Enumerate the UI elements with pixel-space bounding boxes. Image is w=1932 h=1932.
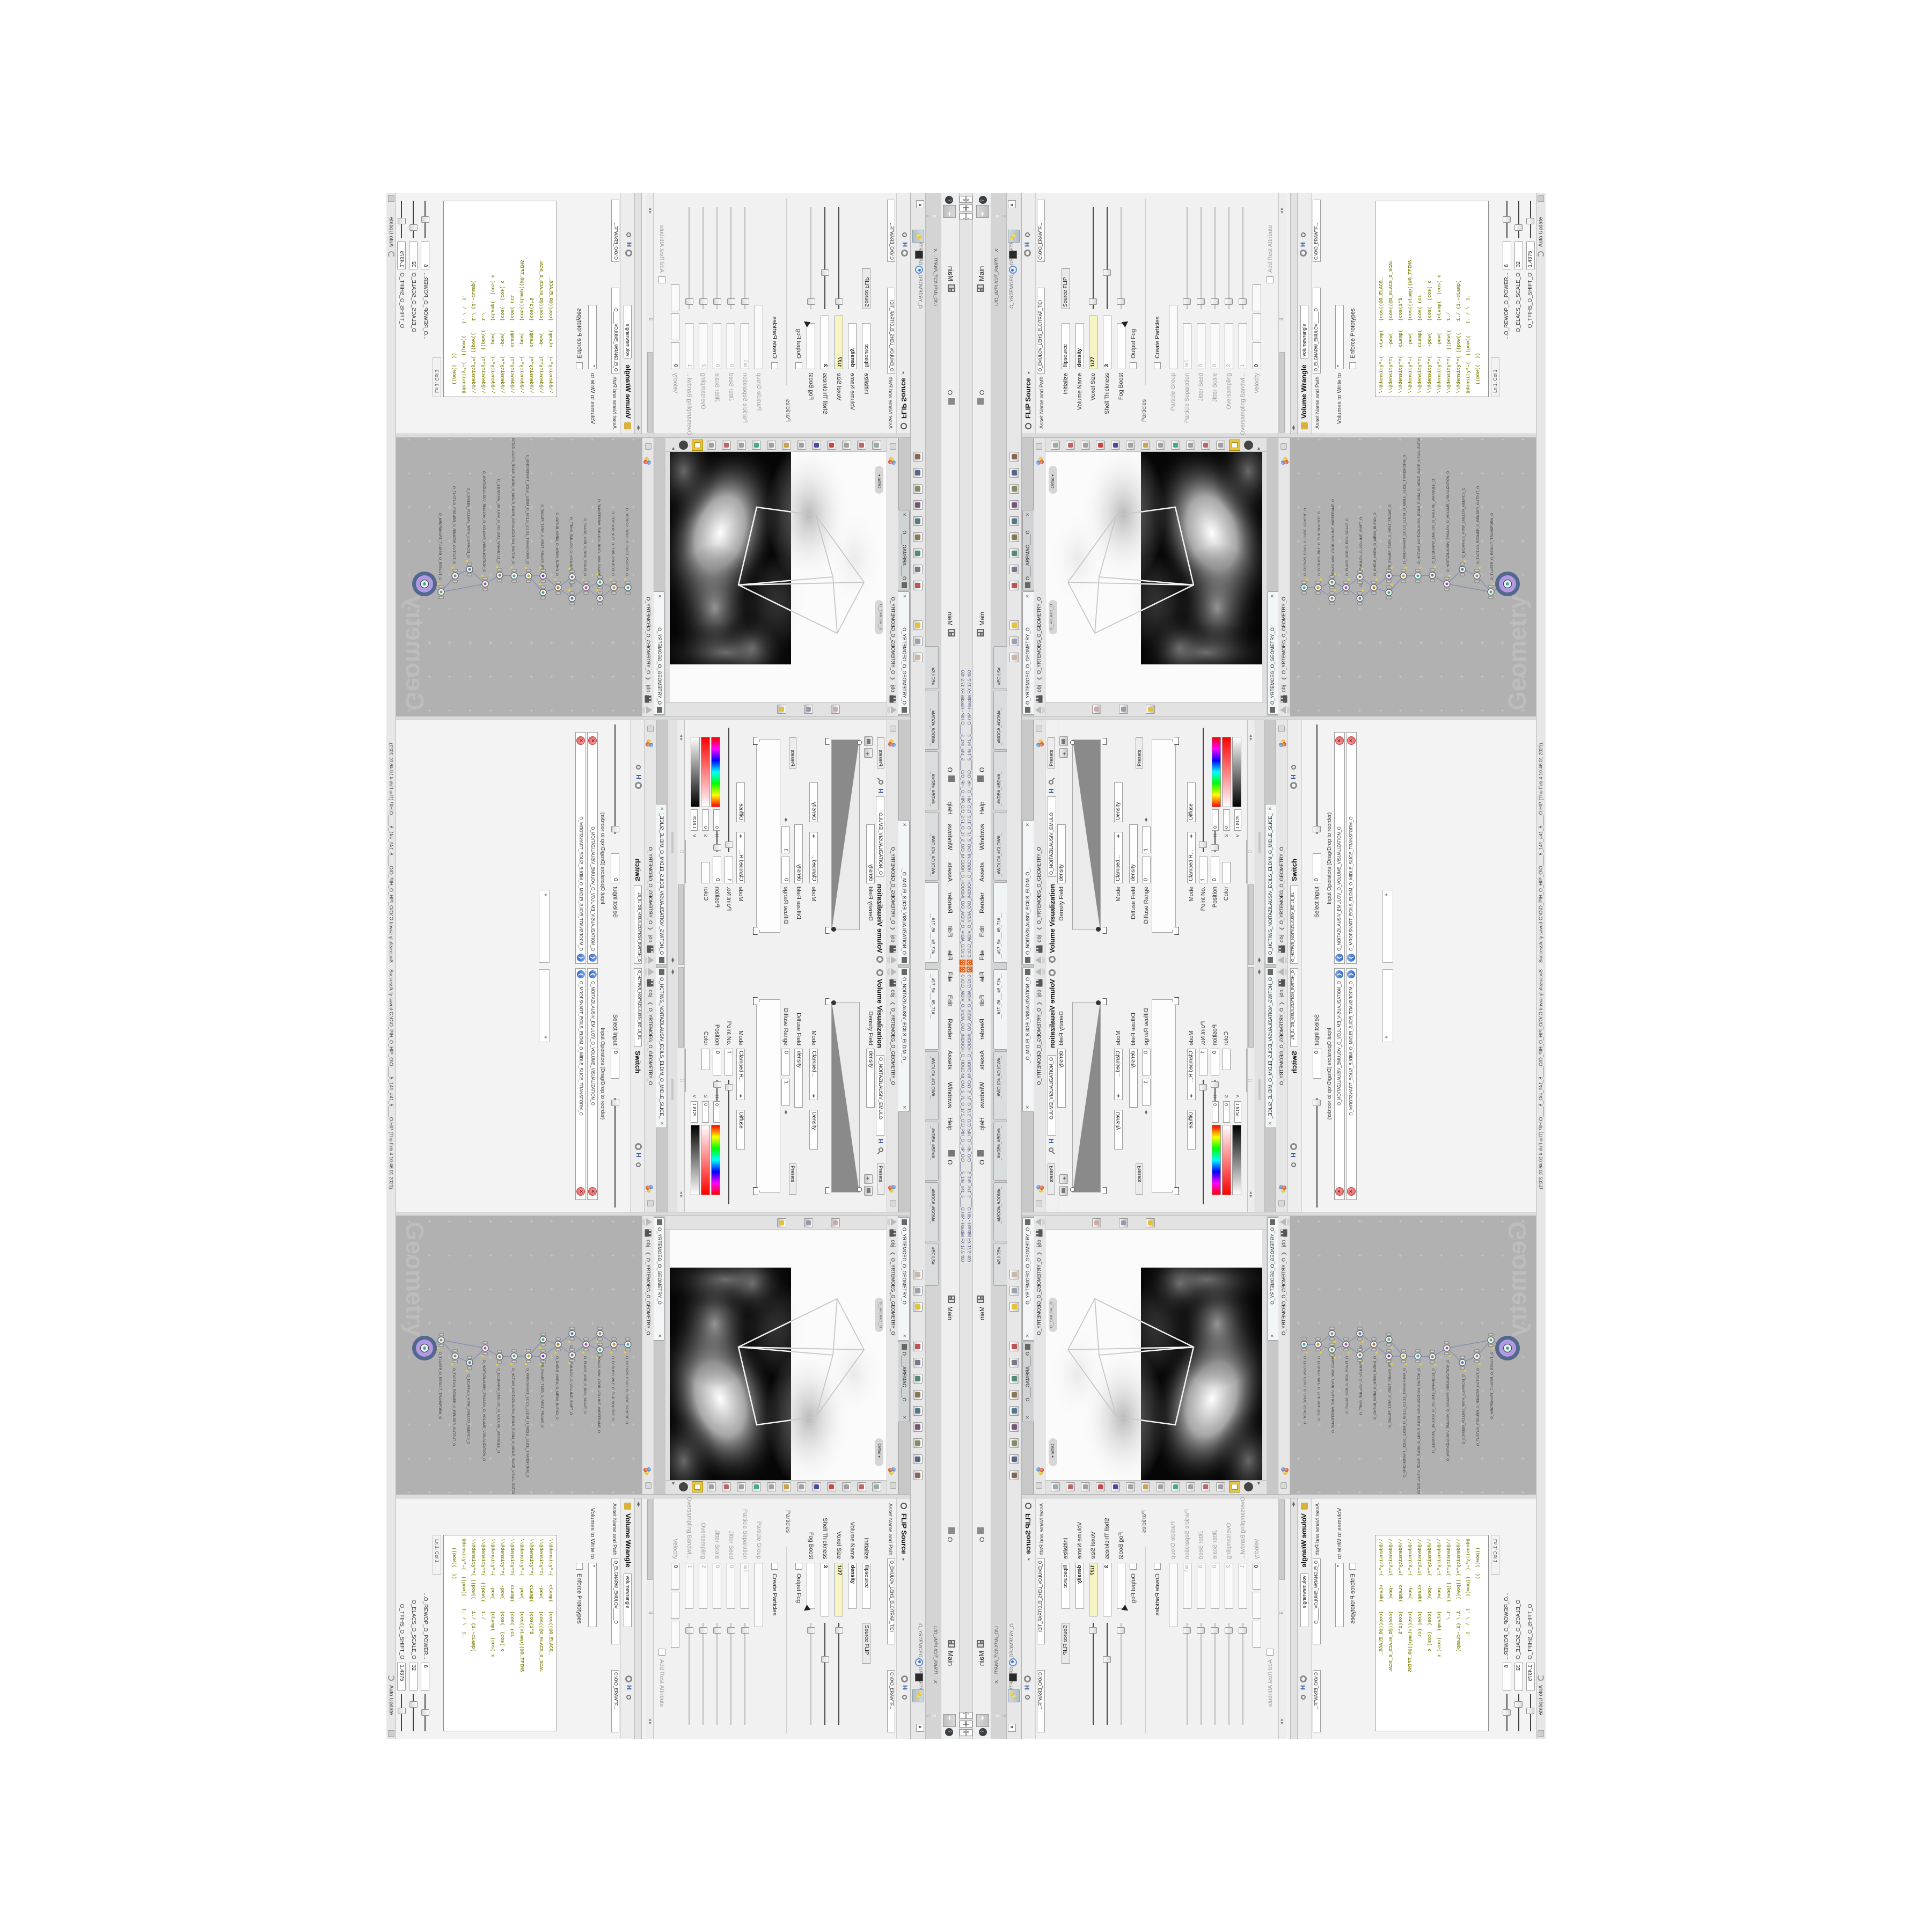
- svg-text:O_TLUSER_O_RESULT_TRANSFORM_O: O_TLUSER_O_RESULT_TRANSFORM_O: [438, 1352, 442, 1419]
- svg-text:O_TLUSER_O_RESULT_TRANSFORM_O: O_TLUSER_O_RESULT_TRANSFORM_O: [438, 513, 442, 580]
- svg-text:O_EREHPS_EBUC_O_CUBE_SPHERE_O: O_EREHPS_EBUC_O_CUBE_SPHERE_O: [625, 508, 628, 576]
- svg-text:O_ECAFRUS_HTIW_EMULOV_NEERCS_O: O_ECAFRUS_HTIW_EMULOV_NEERCS_O: [1462, 1374, 1466, 1444]
- svg-text:O_TUPTUO_REDNER_O_RENDER_OUTPU: O_TUPTUO_REDNER_O_RENDER_OUTPUT_O: [452, 1368, 456, 1446]
- svg-text:O_ELACS_XOB_O_BOX_SCALE_O: O_ELACS_XOB_O_BOX_SCALE_O: [583, 518, 587, 576]
- svg-text:O_ECRUOS_PILF_O_FLIP_SOURCE_O: O_ECRUOS_PILF_O_FLIP_SOURCE_O: [611, 511, 614, 576]
- svg-text:O_EREHPS_EBUC_O_CUBE_SPHERE_O: O_EREHPS_EBUC_O_CUBE_SPHERE_O: [625, 1356, 628, 1424]
- svg-text:O_HCTIWS_NOITAZILAUSIV_ECILS_E: O_HCTIWS_NOITAZILAUSIV_ECILS_ELDIM_O_MID…: [1417, 1368, 1421, 1494]
- svg-text:O_NOITAZILAUSIV_EMULOV_O_VOLUM: O_NOITAZILAUSIV_EMULOV_O_VOLUME_VISUALIZ…: [482, 1360, 486, 1461]
- svg-text:O_ELGNARW_EMULOV_O_VOLUME_WRAN: O_ELGNARW_EMULOV_O_VOLUME_WRANGLE_O: [1432, 479, 1436, 563]
- svg-text:O_ECRUOS_PILF_O_FLIP_SOURCE_O: O_ECRUOS_PILF_O_FLIP_SOURCE_O: [1318, 1356, 1321, 1421]
- svg-text:O_DNELB_HSEM_O_MESH_BLEND_O: O_DNELB_HSEM_O_MESH_BLEND_O: [555, 1356, 559, 1419]
- svg-text:O_ECAFRUS_HTIW_EMULOV_NEERCS_O: O_ECAFRUS_HTIW_EMULOV_NEERCS_O: [466, 488, 470, 558]
- svg-text:O_DNELB_HSEM_O_MESH_BLEND_O: O_DNELB_HSEM_O_MESH_BLEND_O: [1373, 1356, 1377, 1419]
- svg-text:O_TUPTUO_REDNER_O_RENDER_OUTPU: O_TUPTUO_REDNER_O_RENDER_OUTPUT_O: [452, 486, 456, 564]
- svg-text:O_ECAFRUS_HTIW_EMULOV_NEERCS_O: O_ECAFRUS_HTIW_EMULOV_NEERCS_O: [466, 1374, 470, 1444]
- svg-text:O_TLUSER_O_RESULT_TRANSFORM_O: O_TLUSER_O_RESULT_TRANSFORM_O: [1490, 513, 1494, 580]
- svg-text:O_MROFSNART_ECILS_ELDIM_O_MIDL: O_MROFSNART_ECILS_ELDIM_O_MIDLE_SLICE_TR…: [1403, 455, 1407, 564]
- svg-text:O_HCTIWS_NOITAZILAUSIV_ECILS_E: O_HCTIWS_NOITAZILAUSIV_ECILS_ELDIM_O_MID…: [1417, 438, 1421, 564]
- svg-text:O_TLUSER_O_RESULT_TRANSFORM_O: O_TLUSER_O_RESULT_TRANSFORM_O: [1490, 1352, 1494, 1419]
- svg-text:O_DNELB_HSEM_O_MESH_BLEND_O: O_DNELB_HSEM_O_MESH_BLEND_O: [1373, 513, 1377, 576]
- svg-text:O_MROFSNART_ECILS_ELDIM_O_MIDL: O_MROFSNART_ECILS_ELDIM_O_MIDLE_SLICE_TR…: [525, 455, 529, 564]
- svg-text:O_NOITAZILAUSIV_EMULOV_O_VOLUM: O_NOITAZILAUSIV_EMULOV_O_VOLUME_VISUALIZ…: [1446, 1360, 1450, 1461]
- svg-text:O_TUPTUO_REDNER_O_RENDER_OUTPU: O_TUPTUO_REDNER_O_RENDER_OUTPUT_O: [1476, 486, 1480, 564]
- svg-text:O_ELACS_XOB_O_BOX_SCALE_O: O_ELACS_XOB_O_BOX_SCALE_O: [583, 1356, 587, 1414]
- svg-text:O_HCTIWS_NOITAZILAUSIV_ECILS_E: O_HCTIWS_NOITAZILAUSIV_ECILS_ELDIM_O_MID…: [511, 438, 515, 564]
- svg-text:O_NOITAZILAUSIV_EMULOV_O_VOLUM: O_NOITAZILAUSIV_EMULOV_O_VOLUME_VISUALIZ…: [1446, 471, 1450, 572]
- svg-text:O_NOITAZILAUSIV_EMULOV_O_VOLUM: O_NOITAZILAUSIV_EMULOV_O_VOLUME_VISUALIZ…: [482, 471, 486, 572]
- svg-text:O_MROFSNART_ECILS_ELDIM_O_MIDL: O_MROFSNART_ECILS_ELDIM_O_MIDLE_SLICE_TR…: [525, 1368, 529, 1477]
- svg-text:O_ELGNARW_EMULOV_O_VOLUME_WRAN: O_ELGNARW_EMULOV_O_VOLUME_WRANGLE_O: [496, 479, 500, 563]
- svg-text:O_ECRUOS_PILF_O_FLIP_SOURCE_O: O_ECRUOS_PILF_O_FLIP_SOURCE_O: [1318, 511, 1321, 576]
- svg-text:O_TUPTUO_REDNER_O_RENDER_OUTPU: O_TUPTUO_REDNER_O_RENDER_OUTPUT_O: [1476, 1368, 1480, 1446]
- svg-text:O_ELACS_XOB_O_BOX_SCALE_O: O_ELACS_XOB_O_BOX_SCALE_O: [1345, 1356, 1349, 1414]
- svg-text:O_ECAFRUS_HTIW_EMULOV_NEERCS_O: O_ECAFRUS_HTIW_EMULOV_NEERCS_O: [1462, 488, 1466, 558]
- svg-text:O_EREHPS_EBUC_O_CUBE_SPHERE_O: O_EREHPS_EBUC_O_CUBE_SPHERE_O: [1304, 508, 1307, 576]
- svg-text:O_ELGNARW_EMULOV_O_VOLUME_WRAN: O_ELGNARW_EMULOV_O_VOLUME_WRANGLE_O: [496, 1368, 500, 1453]
- svg-text:O_ELGNARW_EMULOV_O_VOLUME_WRAN: O_ELGNARW_EMULOV_O_VOLUME_WRANGLE_O: [1432, 1368, 1436, 1453]
- svg-text:O_MROFSNART_ECILS_ELDIM_O_MIDL: O_MROFSNART_ECILS_ELDIM_O_MIDLE_SLICE_TR…: [1403, 1368, 1407, 1477]
- svg-text:O_DNELB_HSEM_O_MESH_BLEND_O: O_DNELB_HSEM_O_MESH_BLEND_O: [555, 513, 559, 576]
- svg-text:O_ELACS_XOB_O_BOX_SCALE_O: O_ELACS_XOB_O_BOX_SCALE_O: [1345, 518, 1349, 576]
- svg-text:O_ECRUOS_PILF_O_FLIP_SOURCE_O: O_ECRUOS_PILF_O_FLIP_SOURCE_O: [611, 1356, 614, 1421]
- svg-text:O_EREHPS_EBUC_O_CUBE_SPHERE_O: O_EREHPS_EBUC_O_CUBE_SPHERE_O: [1304, 1356, 1307, 1424]
- svg-text:O_HCTIWS_NOITAZILAUSIV_ECILS_E: O_HCTIWS_NOITAZILAUSIV_ECILS_ELDIM_O_MID…: [511, 1368, 515, 1494]
